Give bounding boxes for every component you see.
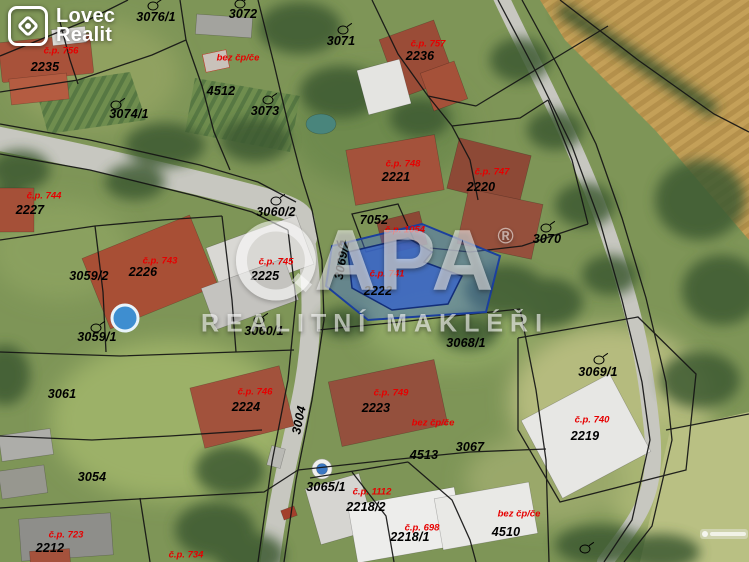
map-viewport[interactable]: 3076/13072307122362235451230733074/12227… [0,0,749,562]
building-symbol-icon [148,2,159,11]
house-number-label: č.p. 734 [169,550,204,561]
building-symbol-icon [594,356,605,365]
parcel-number-label: 2236 [406,49,435,63]
house-number-label: č.p. 1112 [353,487,392,498]
parcel-number-label: 3076/1 [136,10,175,24]
parcel-number-label: 3070 [533,232,562,246]
building-symbol-icon [91,324,102,333]
house-number-label: bez čp/če [217,53,260,64]
parcel-number-label: 2219 [571,429,600,443]
parcel-number-label: 2235 [31,60,60,74]
parcel-number-label: 2227 [16,203,45,217]
parcel-number-label: 2224 [232,400,261,414]
parcel-number-label: 3065/1 [306,480,345,494]
parcel-number-label: 4513 [410,448,439,462]
parcel-number-label: 2223 [362,401,391,415]
parcel-number-label: 2222 [364,284,393,298]
agency-logo-line2: Realit [56,26,115,45]
building-symbol-icon [541,224,552,233]
parcel-number-label: 2220 [467,180,496,194]
house-number-label: č.p. 740 [575,415,610,426]
building-symbol-icon [271,197,282,206]
parcel-number-label: 3059/2 [69,269,108,283]
building-symbol-icon [254,316,265,325]
parcel-number-label: 3067 [456,440,485,454]
house-number-label: bez čp/če [498,509,541,520]
parcel-number-label: 2212 [36,541,65,555]
map-credit-badge [700,529,748,539]
house-number-label: č.p. 756 [44,46,79,57]
parcel-number-label: 3060/2 [256,205,295,219]
boundary-marker-icon: ∨ [335,239,342,250]
parcel-number-label: 3071 [327,34,356,48]
parcel-number-label: 2225 [251,269,280,283]
parcel-number-label: 4510 [492,525,521,539]
agency-logo-icon [8,6,48,46]
house-number-label: č.p. 757 [411,39,446,50]
agency-logo-text: Lovec Realit [56,7,115,45]
house-number-label: č.p. 698 [405,523,440,534]
house-number-label: bez čp/če [412,418,455,429]
house-number-label: č.p. 723 [49,530,84,541]
parcel-number-label: 3060/1 [244,324,283,338]
house-number-label: č.p. 744 [27,191,62,202]
parcel-number-label: 3004 [289,405,309,436]
building-symbol-icon [338,26,349,35]
building-symbol-icon [580,545,591,554]
parcel-number-label: 3054 [78,470,107,484]
house-number-label: č.p. 1054 [385,225,425,236]
house-number-label: č.p. 743 [143,256,178,267]
map-labels-layer: 3076/13072307122362235451230733074/12227… [0,0,749,562]
parcel-number-label: 2226 [129,265,158,279]
building-symbol-icon [111,101,122,110]
house-number-label: č.p. 748 [386,159,421,170]
parcel-number-label: 3069/1 [578,365,617,379]
parcel-number-label: 3068/1 [446,336,485,350]
building-symbol-icon [263,96,274,105]
parcel-number-label: 4512 [207,84,236,98]
parcel-number-label: 3072 [229,7,258,21]
house-number-label: č.p. 745 [259,257,294,268]
house-number-label: č.p. 747 [475,167,510,178]
parcel-number-label: 2221 [382,170,411,184]
parcel-number-label: 3061 [48,387,77,401]
house-number-label: č.p. 746 [238,387,273,398]
agency-logo: Lovec Realit [8,6,115,46]
house-number-label: č.p. 741 [370,269,405,280]
parcel-number-label: 3073 [251,104,280,118]
house-number-label: č.p. 749 [374,388,409,399]
parcel-number-label: 2218/2 [346,500,385,514]
